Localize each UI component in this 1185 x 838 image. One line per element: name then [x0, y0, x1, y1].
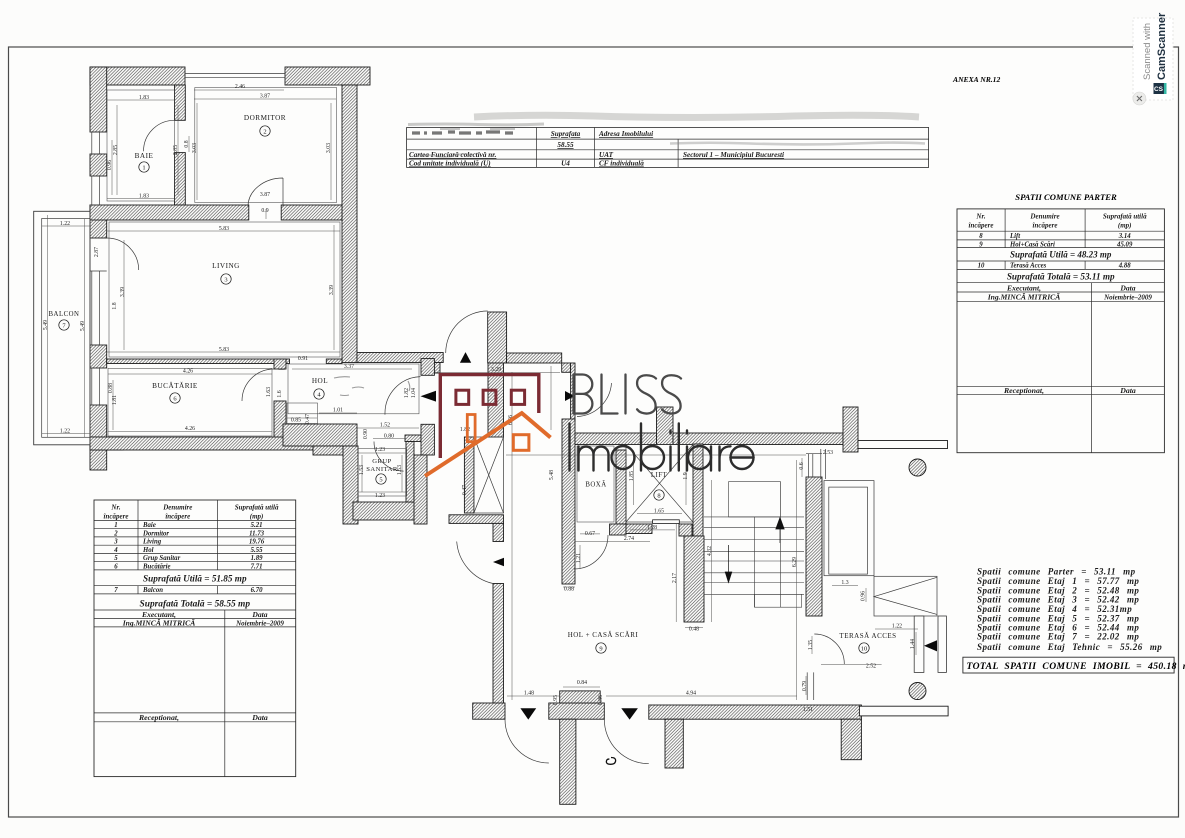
svg-text:încăpere: încăpere: [165, 513, 190, 521]
svg-text:Data: Data: [251, 610, 267, 619]
svg-text:LIFT: LIFT: [651, 472, 668, 479]
svg-text:6.29: 6.29: [792, 557, 798, 567]
svg-text:BAIE: BAIE: [135, 152, 154, 160]
svg-text:0.84: 0.84: [577, 680, 587, 686]
svg-text:0.96: 0.96: [861, 591, 867, 601]
svg-text:Executant,: Executant,: [1006, 283, 1041, 292]
svg-text:Grup Sanitar: Grup Sanitar: [143, 555, 181, 562]
svg-text:2.52: 2.52: [866, 664, 876, 670]
svg-text:3.87: 3.87: [260, 94, 270, 100]
svg-text:UAT: UAT: [599, 151, 614, 159]
svg-text:4.32: 4.32: [707, 546, 713, 556]
svg-text:0.79: 0.79: [802, 681, 808, 691]
svg-text:Ing.MINCĂ MITRICĂ: Ing.MINCĂ MITRICĂ: [987, 292, 1061, 302]
svg-text:2.85: 2.85: [113, 145, 119, 155]
svg-text:CS: CS: [1154, 86, 1164, 93]
svg-text:0.88: 0.88: [108, 383, 114, 393]
svg-text:0.91: 0.91: [298, 356, 308, 362]
svg-text:0.8: 0.8: [184, 140, 190, 147]
svg-text:2.87: 2.87: [94, 247, 100, 257]
svg-text:U4: U4: [561, 160, 570, 168]
svg-text:11.73: 11.73: [249, 530, 265, 537]
svg-text:1.53: 1.53: [397, 465, 403, 475]
svg-text:1.63: 1.63: [266, 387, 272, 397]
svg-text:încăpere: încăpere: [969, 222, 994, 230]
svg-text:1: 1: [142, 164, 145, 171]
svg-text:0.36: 0.36: [598, 695, 604, 705]
svg-text:0.67: 0.67: [585, 531, 595, 537]
svg-text:Cod unitate individuală (U): Cod unitate individuală (U): [409, 160, 491, 168]
svg-text:3.39: 3.39: [329, 285, 335, 295]
svg-text:7: 7: [114, 587, 118, 594]
svg-text:3.29: 3.29: [491, 367, 501, 373]
svg-text:Sectorul 1 – Municipiul Bucure: Sectorul 1 – Municipiul Bucuresti: [683, 151, 784, 159]
svg-text:Receptionat,: Receptionat,: [1003, 386, 1044, 395]
svg-text:1.83: 1.83: [139, 194, 149, 200]
svg-text:ANEXA NR.12: ANEXA NR.12: [952, 75, 1000, 84]
svg-text:HOL + CASĂ SCĂRI: HOL + CASĂ SCĂRI: [568, 631, 639, 639]
svg-text:Scanned with: Scanned with: [1142, 23, 1153, 80]
svg-text:Balcon: Balcon: [142, 587, 163, 594]
svg-text:BOXĂ: BOXĂ: [585, 481, 606, 489]
svg-text:8: 8: [657, 492, 660, 499]
svg-text:(mp): (mp): [250, 513, 264, 521]
svg-text:Lift: Lift: [1009, 233, 1021, 240]
svg-text:5.49: 5.49: [43, 320, 49, 330]
svg-text:Suprafată Utilă = 51.85 mp: Suprafată Utilă = 51.85 mp: [143, 574, 247, 584]
svg-text:0.80: 0.80: [384, 434, 394, 440]
svg-text:3: 3: [113, 539, 118, 546]
svg-text:4.94: 4.94: [686, 691, 696, 697]
svg-text:0.88: 0.88: [564, 587, 574, 593]
svg-text:3.03: 3.03: [192, 143, 198, 153]
svg-text:Executant,: Executant,: [141, 610, 176, 619]
svg-text:1.22: 1.22: [60, 429, 70, 435]
svg-text:2.17: 2.17: [672, 573, 678, 583]
svg-text:BALCON: BALCON: [49, 311, 80, 318]
svg-text:19.76: 19.76: [249, 539, 265, 546]
svg-text:TERASĂ ACCES: TERASĂ ACCES: [839, 632, 896, 640]
svg-text:0.90: 0.90: [363, 429, 369, 439]
svg-text:58.55: 58.55: [557, 141, 574, 149]
svg-text:1.83: 1.83: [139, 95, 149, 101]
svg-text:Suprafată utilă: Suprafată utilă: [235, 504, 279, 512]
svg-text:2: 2: [113, 530, 118, 537]
svg-text:8: 8: [979, 233, 983, 240]
svg-text:2.46: 2.46: [235, 84, 245, 90]
svg-text:1.51: 1.51: [803, 707, 813, 713]
svg-text:1.53: 1.53: [359, 465, 365, 475]
svg-text:0.47: 0.47: [462, 485, 468, 495]
svg-text:TOTAL SPATII COMUNE IMOBIL: TOTAL SPATII COMUNE IMOBIL = 450.18 mp: [967, 661, 1185, 672]
svg-text:1.52: 1.52: [380, 423, 390, 429]
svg-text:Spatii comune Etaj 7 = 22: Spatii comune Etaj 7 = 22.02 mp: [977, 632, 1139, 642]
svg-text:SANITAR: SANITAR: [366, 466, 398, 473]
svg-text:Adresa Imobilului: Adresa Imobilului: [598, 130, 653, 138]
svg-text:1.85: 1.85: [629, 471, 635, 481]
svg-text:Denumire: Denumire: [162, 504, 192, 512]
svg-text:4: 4: [113, 547, 118, 554]
svg-text:0.95: 0.95: [553, 695, 559, 705]
svg-text:Nr.: Nr.: [975, 213, 985, 221]
svg-text:HOL: HOL: [312, 377, 328, 385]
svg-text:6: 6: [114, 563, 118, 570]
svg-text:0.96: 0.96: [107, 160, 113, 170]
svg-text:3: 3: [224, 276, 227, 283]
svg-text:5: 5: [114, 555, 118, 562]
svg-text:5.48: 5.48: [549, 470, 555, 480]
svg-text:1.28: 1.28: [647, 525, 657, 531]
svg-text:Suprafata: Suprafata: [551, 130, 581, 138]
svg-text:2: 2: [263, 128, 266, 135]
svg-text:1: 1: [114, 522, 117, 529]
svg-text:5.83: 5.83: [219, 226, 229, 232]
svg-text:1.81: 1.81: [112, 395, 118, 405]
svg-text:2.85: 2.85: [173, 145, 179, 155]
svg-text:2.53: 2.53: [823, 450, 833, 456]
svg-text:10: 10: [978, 263, 985, 270]
svg-text:Suprafată utilă: Suprafată utilă: [1103, 213, 1147, 221]
svg-text:1.8: 1.8: [112, 302, 118, 309]
svg-text:5.83: 5.83: [219, 347, 229, 353]
svg-text:Suprafată Totală = 53.11 m: Suprafată Totală = 53.11 mp: [1007, 272, 1115, 282]
svg-text:1.04: 1.04: [411, 388, 417, 398]
svg-text:Denumire: Denumire: [1029, 213, 1059, 221]
svg-text:1.44: 1.44: [910, 639, 916, 649]
svg-text:Data: Data: [1119, 283, 1135, 292]
svg-text:încăpere: încăpere: [104, 513, 129, 521]
svg-text:1.89: 1.89: [251, 555, 263, 562]
svg-text:0.6: 0.6: [799, 462, 805, 469]
svg-text:10: 10: [861, 645, 868, 652]
svg-text:Hol: Hol: [142, 547, 154, 554]
svg-text:Data: Data: [1119, 386, 1136, 395]
svg-text:1.21: 1.21: [576, 553, 582, 563]
svg-text:3.39: 3.39: [120, 287, 126, 297]
svg-text:0.85: 0.85: [291, 418, 301, 424]
svg-text:1.23: 1.23: [375, 447, 385, 453]
svg-text:DORMITOR: DORMITOR: [244, 114, 286, 122]
svg-text:Noiembrie–2009: Noiembrie–2009: [1103, 293, 1152, 301]
svg-text:3.87: 3.87: [260, 192, 270, 198]
svg-text:Spatii comune Etaj Tehnic: Spatii comune Etaj Tehnic = 55.26 mp: [977, 642, 1162, 652]
svg-text:Bucătărie: Bucătărie: [142, 563, 171, 570]
svg-text:Nr.: Nr.: [110, 504, 120, 512]
svg-text:3.14: 3.14: [1118, 233, 1131, 240]
svg-text:Data: Data: [251, 713, 268, 722]
svg-text:1.6: 1.6: [277, 390, 283, 397]
svg-text:Dormitor: Dormitor: [142, 530, 169, 537]
svg-text:Receptionat,: Receptionat,: [138, 713, 179, 722]
svg-text:3.03: 3.03: [326, 143, 332, 153]
svg-text:SPATII COMUNE PARTER: SPATII COMUNE PARTER: [1015, 192, 1117, 202]
svg-text:1.22: 1.22: [60, 221, 70, 227]
svg-text:9: 9: [599, 645, 602, 652]
svg-text:5.55: 5.55: [251, 547, 263, 554]
svg-text:1.9: 1.9: [683, 472, 689, 479]
svg-text:0.48: 0.48: [689, 627, 699, 633]
svg-text:Suprafată Totală = 58.55 m: Suprafată Totală = 58.55 mp: [140, 600, 251, 610]
svg-text:1.23: 1.23: [375, 493, 385, 499]
svg-text:0.47: 0.47: [305, 414, 311, 424]
svg-text:2.74: 2.74: [624, 536, 634, 542]
svg-text:1.3: 1.3: [841, 580, 848, 586]
svg-text:5.21: 5.21: [251, 522, 263, 529]
svg-text:LIVING: LIVING: [212, 262, 240, 270]
svg-text:3.37: 3.37: [344, 364, 354, 370]
svg-text:4.88: 4.88: [1118, 263, 1131, 270]
svg-text:BUCĂTĂRIE: BUCĂTĂRIE: [152, 381, 198, 390]
svg-text:5.49: 5.49: [80, 321, 86, 331]
svg-text:4.26: 4.26: [185, 426, 195, 432]
svg-text:Living: Living: [142, 539, 162, 546]
svg-text:Baie: Baie: [142, 522, 156, 529]
svg-text:4.26: 4.26: [183, 369, 193, 375]
svg-text:1.01: 1.01: [333, 408, 343, 414]
svg-text:încăpere: încăpere: [1033, 222, 1058, 230]
svg-text:5: 5: [379, 476, 382, 483]
svg-text:7.71: 7.71: [251, 563, 263, 570]
svg-text:(mp): (mp): [1118, 222, 1132, 230]
svg-text:1.65: 1.65: [654, 509, 664, 515]
svg-text:Terasă Acces: Terasă Acces: [1010, 263, 1047, 270]
svg-text:Ing.MINCĂ MITRICĂ: Ing.MINCĂ MITRICĂ: [122, 618, 196, 628]
svg-text:6.70: 6.70: [251, 587, 263, 594]
svg-text:1.22: 1.22: [892, 624, 902, 630]
svg-text:CF individuală: CF individuală: [599, 160, 644, 168]
svg-text:45.09: 45.09: [1116, 241, 1133, 248]
svg-text:CamScanner: CamScanner: [1156, 12, 1168, 80]
svg-text:Suprafată Utilă = 48.23 mp: Suprafată Utilă = 48.23 mp: [1010, 250, 1112, 260]
svg-text:1.48: 1.48: [524, 691, 534, 697]
svg-text:1.35: 1.35: [808, 640, 814, 650]
svg-text:9: 9: [979, 241, 983, 248]
svg-text:0.9: 0.9: [261, 208, 268, 214]
svg-text:GRUP: GRUP: [372, 458, 392, 465]
svg-text:Noiembrie–2009: Noiembrie–2009: [235, 620, 284, 628]
svg-text:Hol+Casă Scări: Hol+Casă Scări: [1009, 241, 1055, 248]
